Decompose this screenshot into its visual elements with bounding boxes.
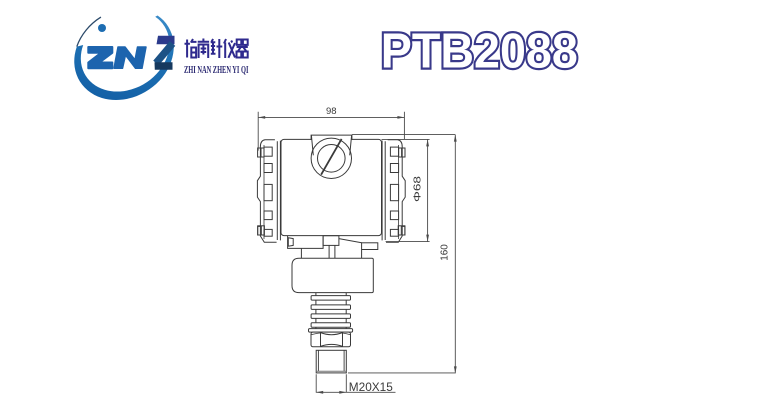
svg-text:Φ68: Φ68 — [413, 175, 424, 202]
svg-text:160: 160 — [440, 244, 451, 261]
svg-text:98: 98 — [326, 106, 337, 117]
svg-text:M20X15: M20X15 — [349, 380, 393, 394]
svg-text:PTB2088: PTB2088 — [381, 24, 578, 79]
svg-text:ZHI NAN ZHEN YI QI: ZHI NAN ZHEN YI QI — [184, 64, 249, 76]
